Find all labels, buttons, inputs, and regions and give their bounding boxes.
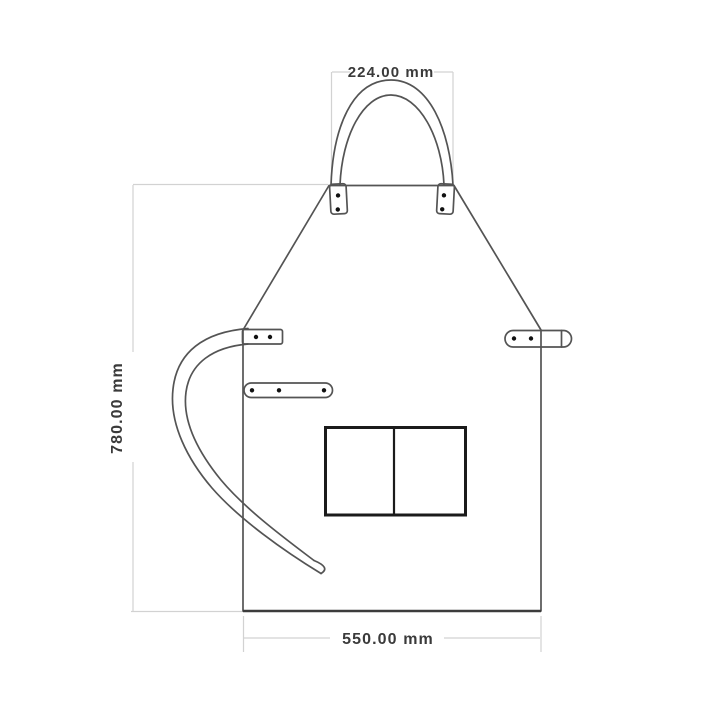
rivet [250,388,254,392]
left-waist-strap-tab [243,330,283,345]
neck-strap-loop [329,80,454,214]
neck-strap-tab-right [436,184,454,215]
rivet [442,193,447,198]
neck-strap-tab-left [329,184,347,215]
rivet [440,207,445,212]
dimension-label-bottom-width: 550.00 mm [342,631,434,648]
dimension-line-work [131,72,541,652]
apron-technical-drawing: 224.00 mm 780.00 mm 550.00 mm [0,0,720,720]
rivet [268,335,272,339]
extension-lines-top [332,72,454,183]
rivet [254,335,258,339]
curved-waist-strap [172,329,324,574]
rivet [335,207,340,212]
double-pocket [326,428,466,516]
dimension-top-width [332,72,454,183]
waist-strap-outer-edge [172,329,321,574]
apron-technical-drawing-page: 224.00 mm 780.00 mm 550.00 mm [0,0,720,720]
waist-strap-inner-edge [185,344,314,561]
rivet [277,388,281,392]
rivet [512,336,516,340]
three-rivet-tab [244,383,333,398]
pocket-outline [326,428,466,516]
rivet [322,388,326,392]
rivet [529,336,533,340]
rivet [336,193,341,198]
right-waist-strap-tab [505,331,572,348]
tab-outline [243,330,283,345]
dimension-label-height: 780.00 mm [109,362,126,454]
tab-outline [244,383,333,398]
dimension-label-neck-strap-width: 224.00 mm [348,64,435,81]
neck-strap-inner-edge [340,95,444,185]
strap-end-tab [436,184,454,215]
